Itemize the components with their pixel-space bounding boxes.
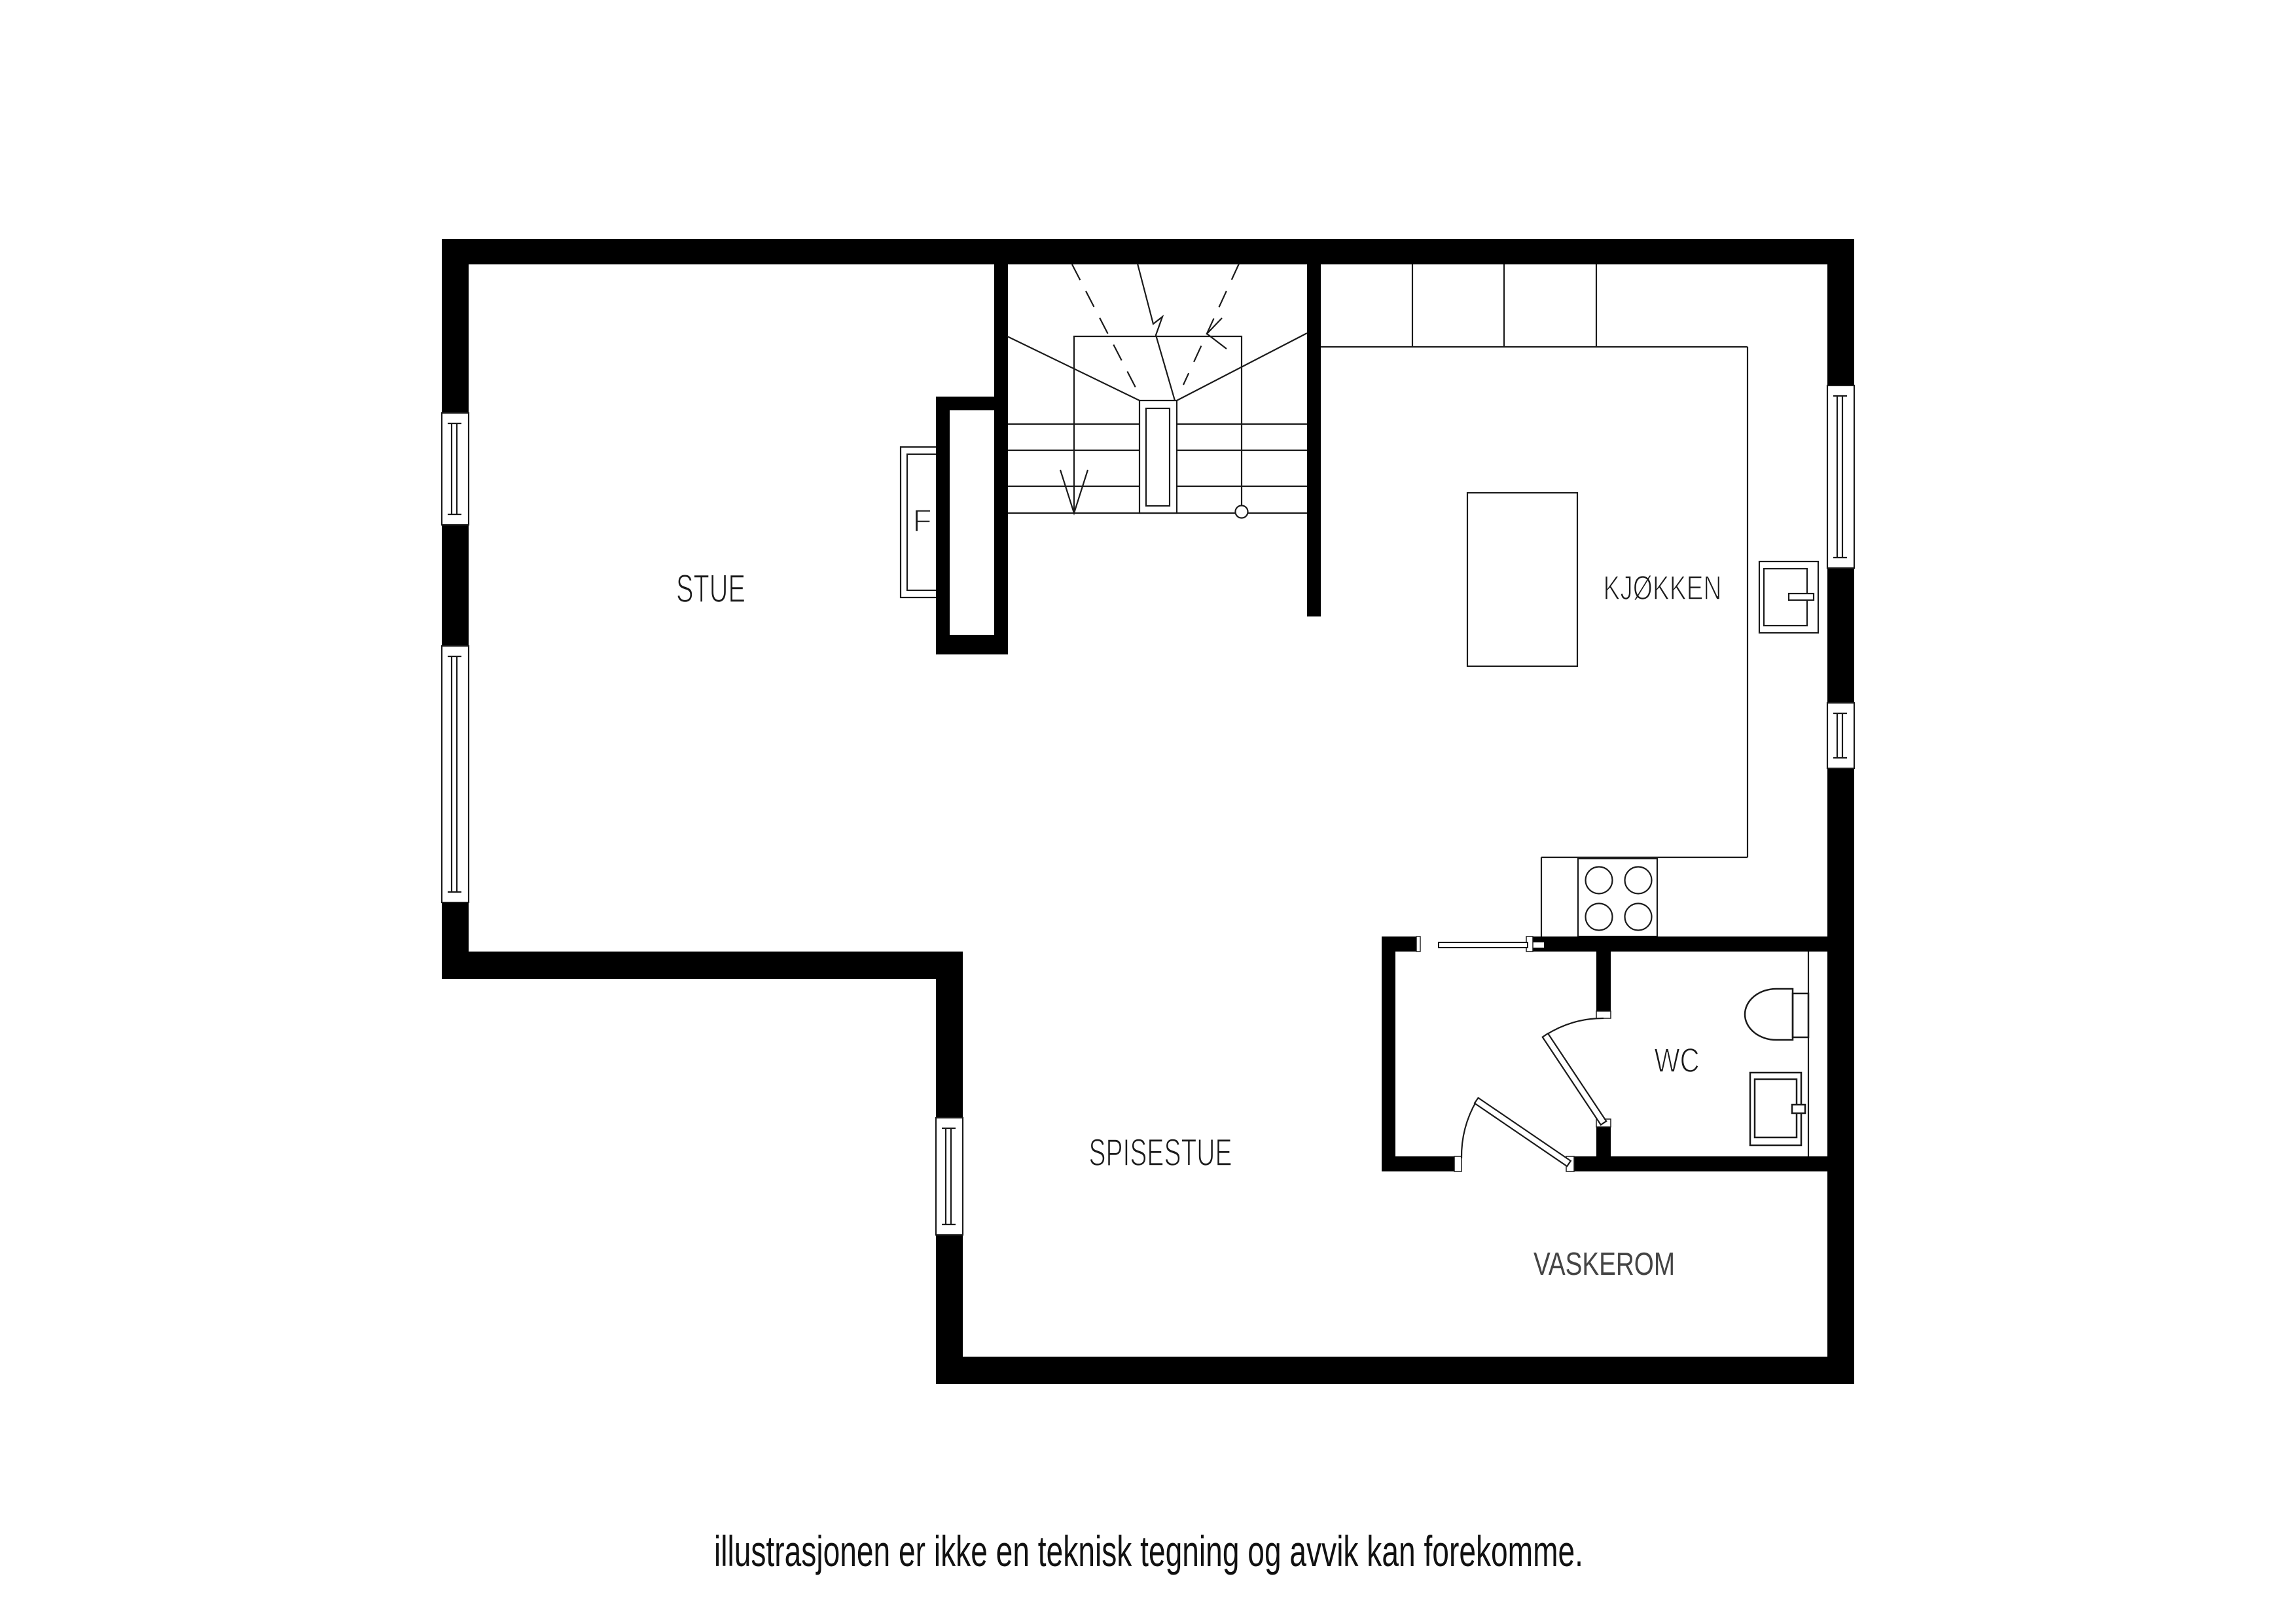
svg-text:VASKEROM: VASKEROM xyxy=(1534,1247,1675,1282)
svg-text:KJØKKEN: KJØKKEN xyxy=(1604,569,1722,607)
svg-text:illustrasjonen er ikke en tekn: illustrasjonen er ikke en teknisk tegnin… xyxy=(714,1527,1583,1575)
svg-text:F: F xyxy=(912,504,931,539)
svg-text:WC: WC xyxy=(1655,1042,1700,1080)
svg-text:SPISESTUE: SPISESTUE xyxy=(1089,1132,1232,1174)
svg-text:STUE: STUE xyxy=(676,567,745,611)
